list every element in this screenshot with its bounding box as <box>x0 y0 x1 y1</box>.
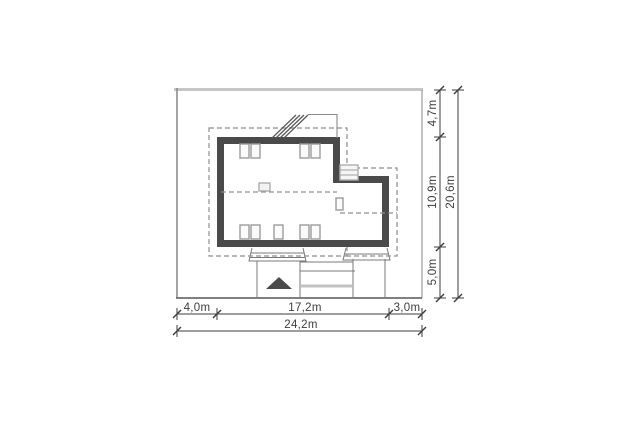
roof-window <box>336 198 343 210</box>
chimney <box>259 183 270 191</box>
roof-window <box>311 225 320 239</box>
roof-window <box>311 144 320 158</box>
dim-label-left-offset: 4,0m <box>184 302 211 314</box>
roof-window <box>251 225 260 239</box>
roof-window <box>240 225 249 239</box>
roof-window <box>300 225 309 239</box>
roof-window <box>240 144 249 158</box>
dim-label-house-depth: 10,9m <box>427 175 439 208</box>
dim-label-total-depth: 20,6m <box>445 175 457 208</box>
dim-label-top-offset: 4,7m <box>427 100 439 127</box>
dim-label-house-width: 17,2m <box>288 302 321 314</box>
dimension-right-labels: 4,7m 10,9m 5,0m 20,6m <box>427 100 457 286</box>
roof-window <box>251 144 260 158</box>
dim-label-right-offset: 3,0m <box>394 302 421 314</box>
site-plan-drawing: 4,0m 17,2m 3,0m 24,2m 4,7m 10,9m <box>0 0 640 427</box>
chimney <box>340 165 358 180</box>
dimension-bottom-labels: 4,0m 17,2m 3,0m 24,2m <box>184 302 421 331</box>
roof-window <box>274 225 283 239</box>
roof-window <box>300 144 309 158</box>
dim-label-total-width: 24,2m <box>284 319 317 331</box>
site-plan-canvas: 4,0m 17,2m 3,0m 24,2m 4,7m 10,9m <box>0 0 640 427</box>
dim-label-bottom-offset: 5,0m <box>427 259 439 286</box>
